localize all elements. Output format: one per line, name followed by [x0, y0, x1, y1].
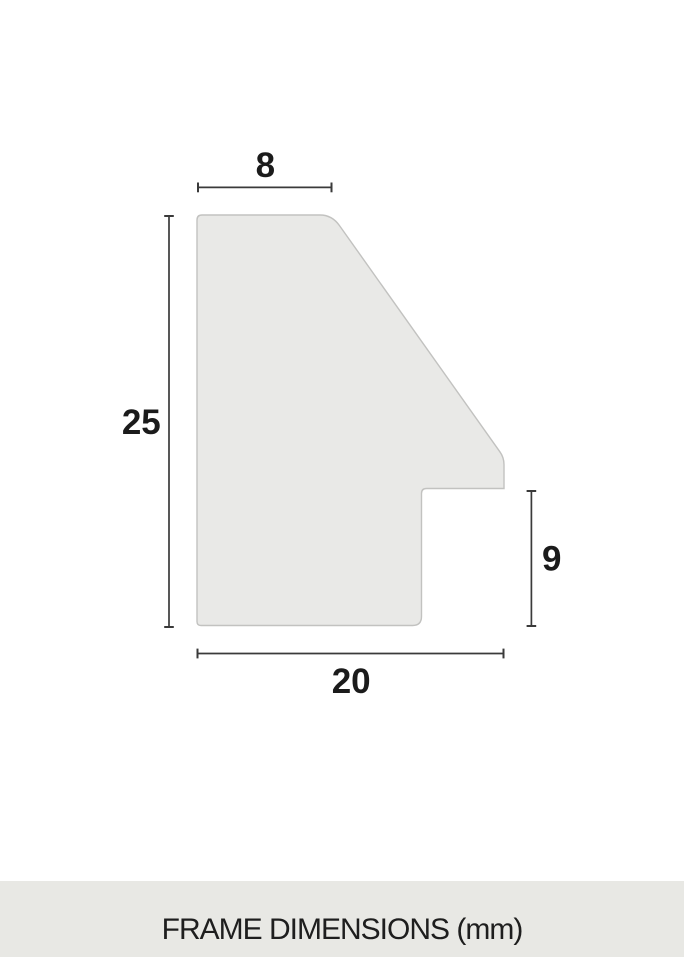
svg-text:9: 9	[542, 540, 561, 579]
svg-text:20: 20	[332, 662, 371, 701]
svg-text:25: 25	[122, 403, 161, 442]
svg-text:8: 8	[256, 146, 275, 185]
